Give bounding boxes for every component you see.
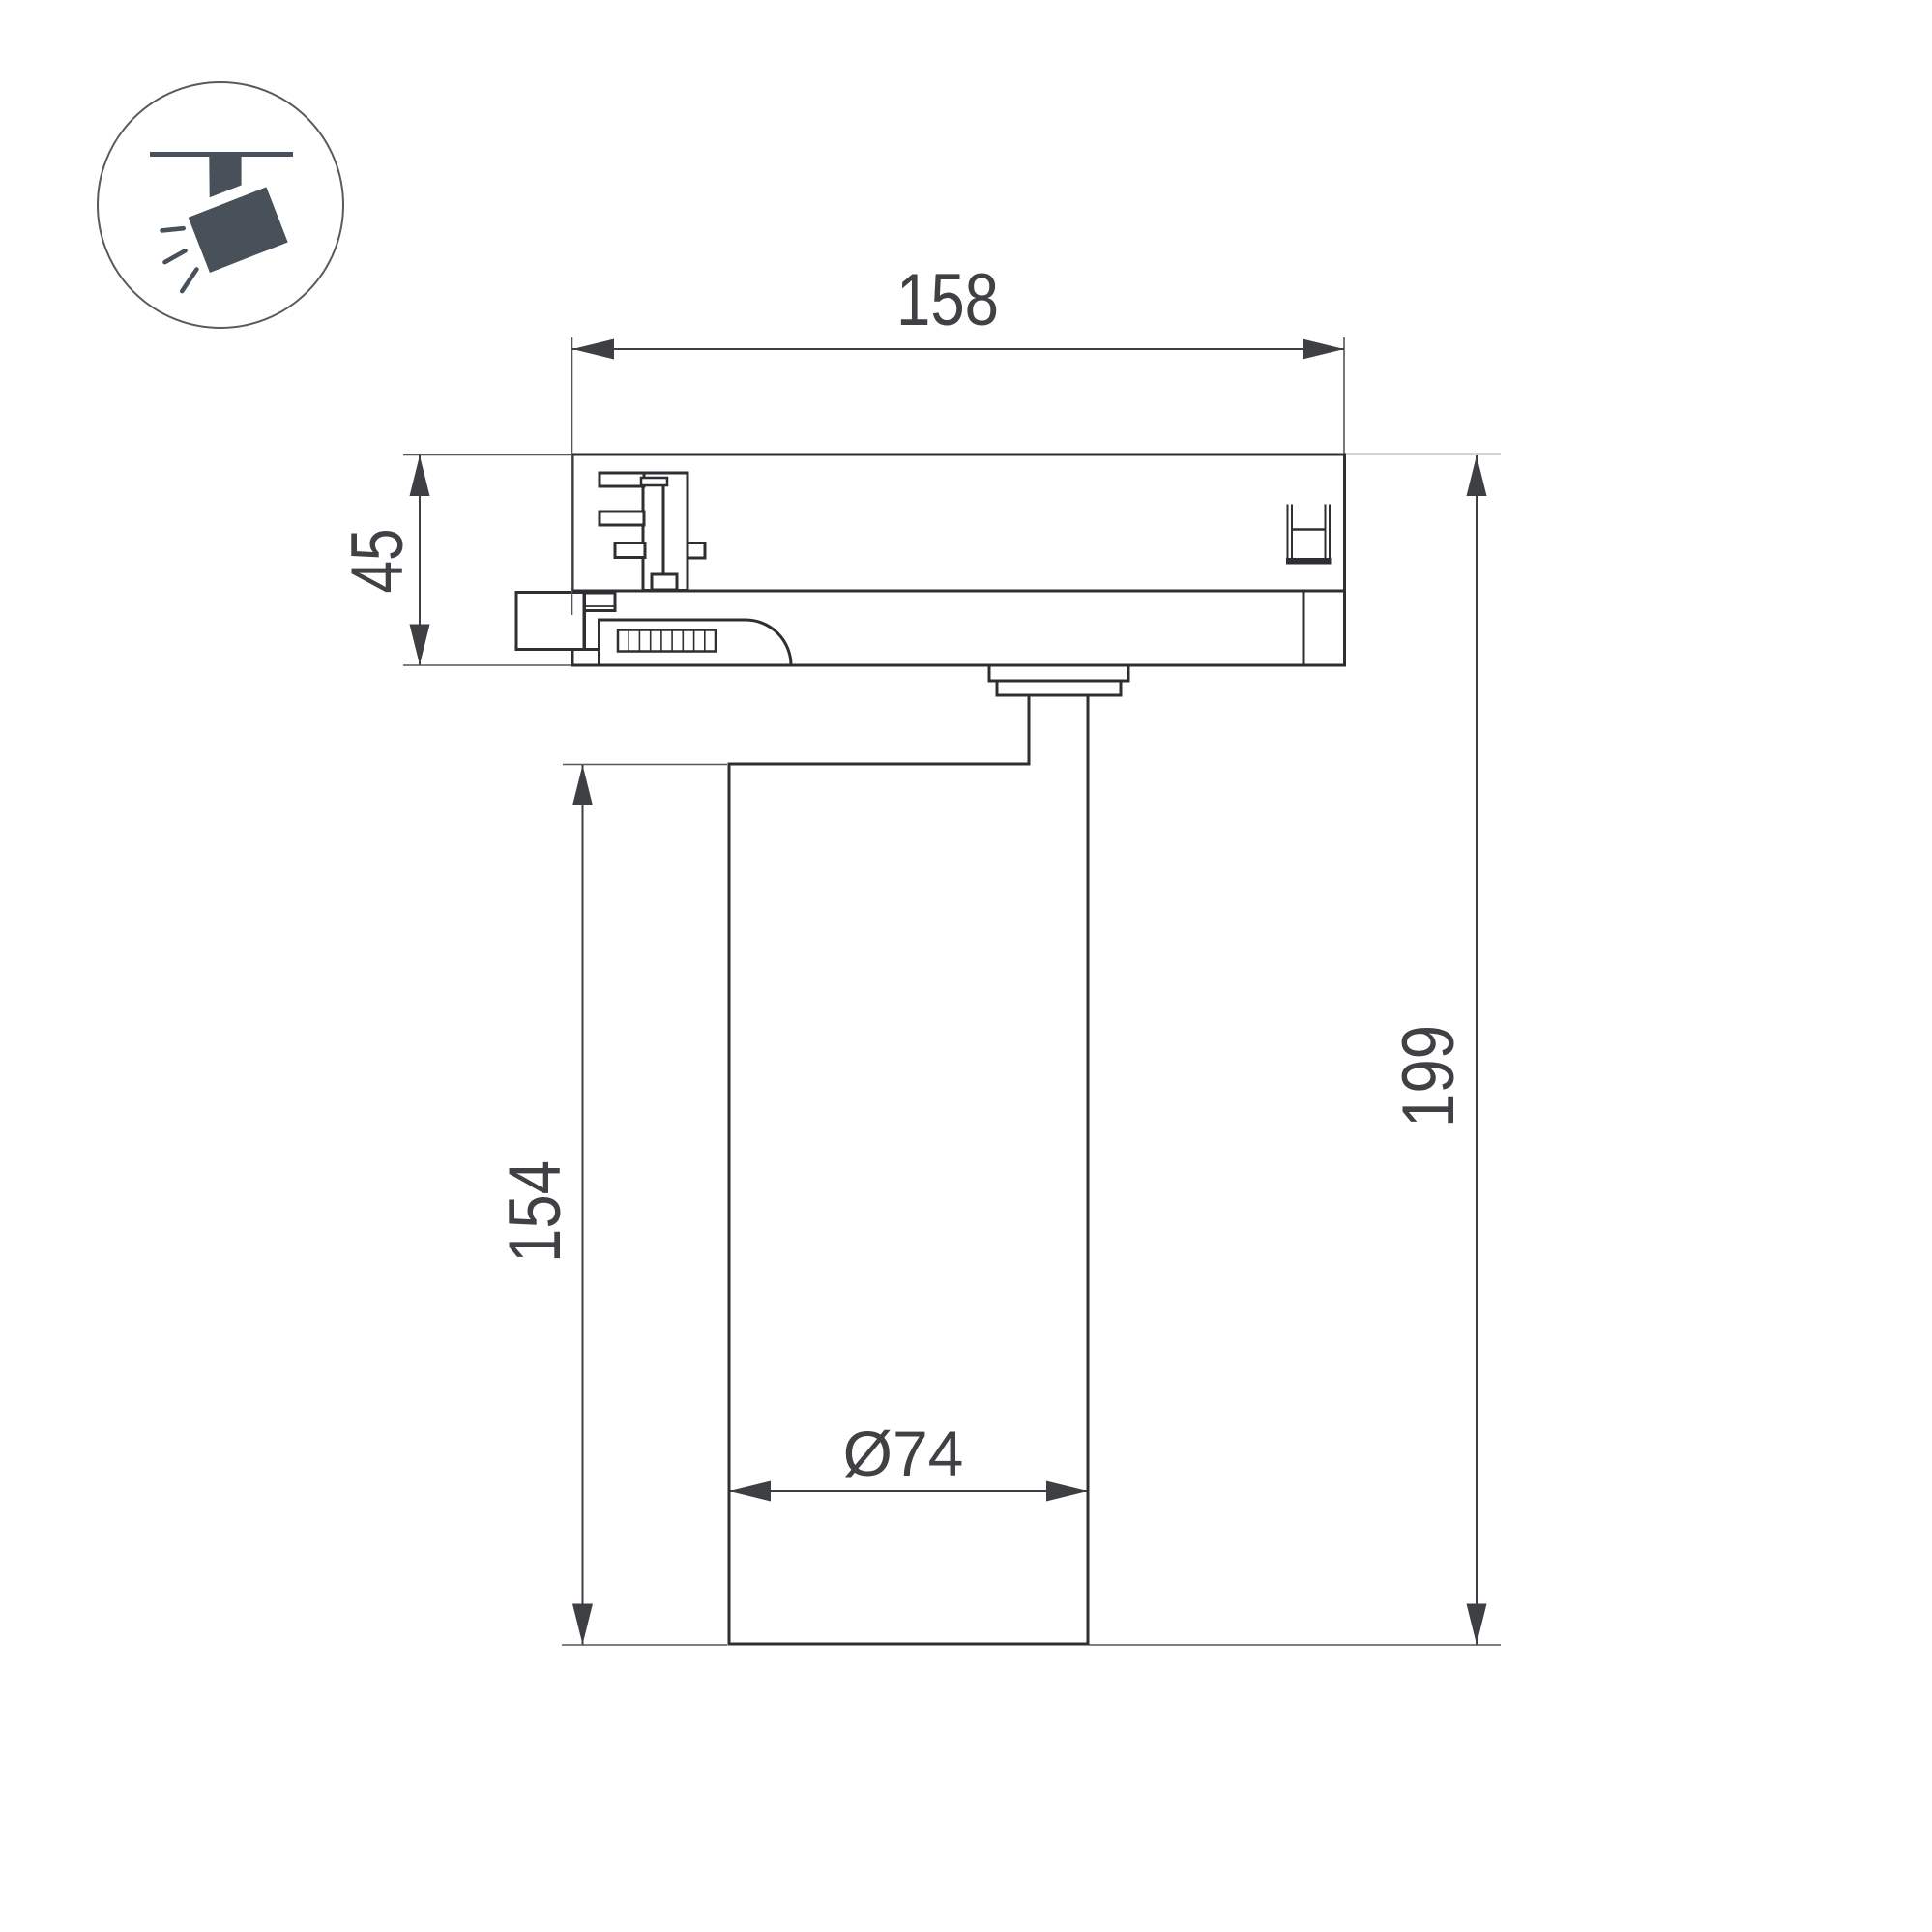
svg-text:Ø74: Ø74 — [843, 1418, 964, 1489]
svg-text:199: 199 — [1388, 1025, 1470, 1127]
svg-text:154: 154 — [494, 1160, 576, 1263]
svg-text:158: 158 — [896, 259, 999, 341]
svg-text:45: 45 — [337, 529, 419, 594]
